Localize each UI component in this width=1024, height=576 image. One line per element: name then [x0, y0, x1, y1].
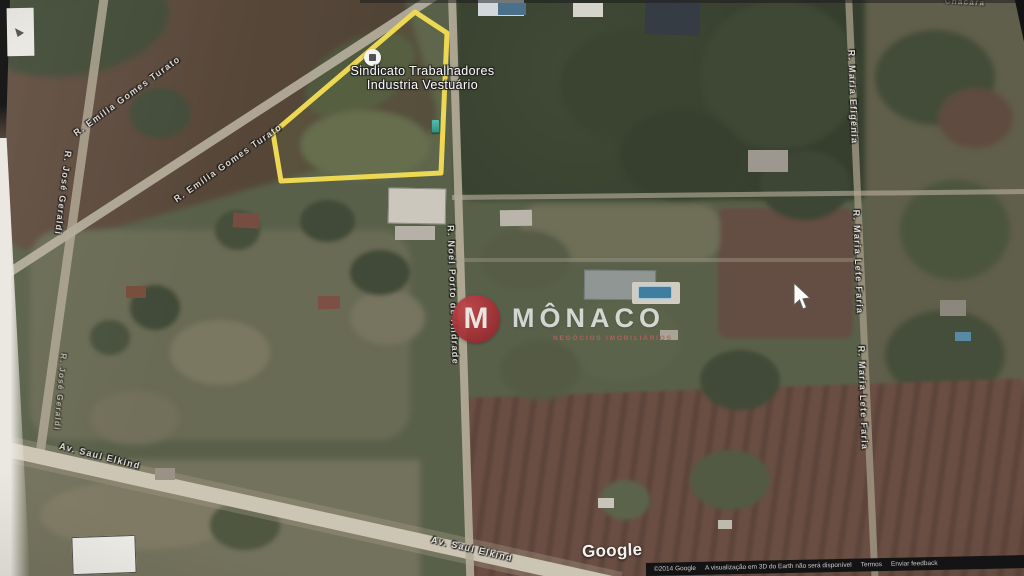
street-label-maria-efigenia: R. Maria Efigênia — [846, 50, 859, 145]
monaco-watermark: M MÔNACO NEGÓCIOS IMOBILIÁRIOS — [440, 285, 690, 355]
google-logo[interactable]: Google — [582, 540, 643, 562]
street-label-maria-lete-upper: R. Maria Lete Faria — [851, 209, 865, 314]
monaco-monogram-icon: M — [452, 295, 500, 343]
poi-label-line2: Industria Vestuário — [340, 78, 505, 92]
satellite-map[interactable]: Sindicato Trabalhadores Industria Vestuá… — [0, 0, 1024, 576]
photo-top-edge-line — [360, 0, 1024, 3]
street-label-jose-upper: R. José Geraldi — [53, 150, 73, 236]
map-pin-icon[interactable] — [431, 119, 440, 133]
attribution-copyright: ©2014 Google — [654, 565, 696, 573]
tiny-cursor-glyph-icon — [15, 28, 24, 37]
attribution-feedback-link[interactable]: Enviar feedback — [891, 560, 938, 568]
photo-corner-notch — [7, 8, 35, 56]
white-rectangle-bottom-left — [71, 535, 136, 575]
screen-photo: Sindicato Trabalhadores Industria Vestuá… — [0, 0, 1024, 576]
mouse-cursor-icon — [792, 282, 814, 312]
street-label-jose-lower: R. José Geraldi — [52, 353, 68, 431]
poi-label-line1: Sindicato Trabalhadores — [340, 64, 505, 78]
street-label-saul-elkind-left: Av. Saul Elkind — [58, 441, 141, 471]
street-label-emilia-upper: R. Emília Gomes Turato — [72, 54, 183, 138]
street-label-maria-lete-lower: R. Maria Lete Faria — [856, 345, 870, 450]
attribution-terms-link[interactable]: Termos — [861, 561, 882, 568]
street-label-emilia-lower: R. Emília Gomes Turato — [172, 122, 284, 204]
poi-label[interactable]: Sindicato Trabalhadores Industria Vestuá… — [340, 64, 505, 92]
attribution-3d-notice: A visualização em 3D do Earth não será d… — [705, 562, 852, 572]
monaco-tagline: NEGÓCIOS IMOBILIÁRIOS — [553, 335, 673, 342]
building-glyph-icon — [369, 54, 376, 61]
monaco-brand-text: MÔNACO — [512, 303, 665, 334]
street-label-saul-elkind-center: Av. Saul Elkind — [430, 535, 514, 564]
